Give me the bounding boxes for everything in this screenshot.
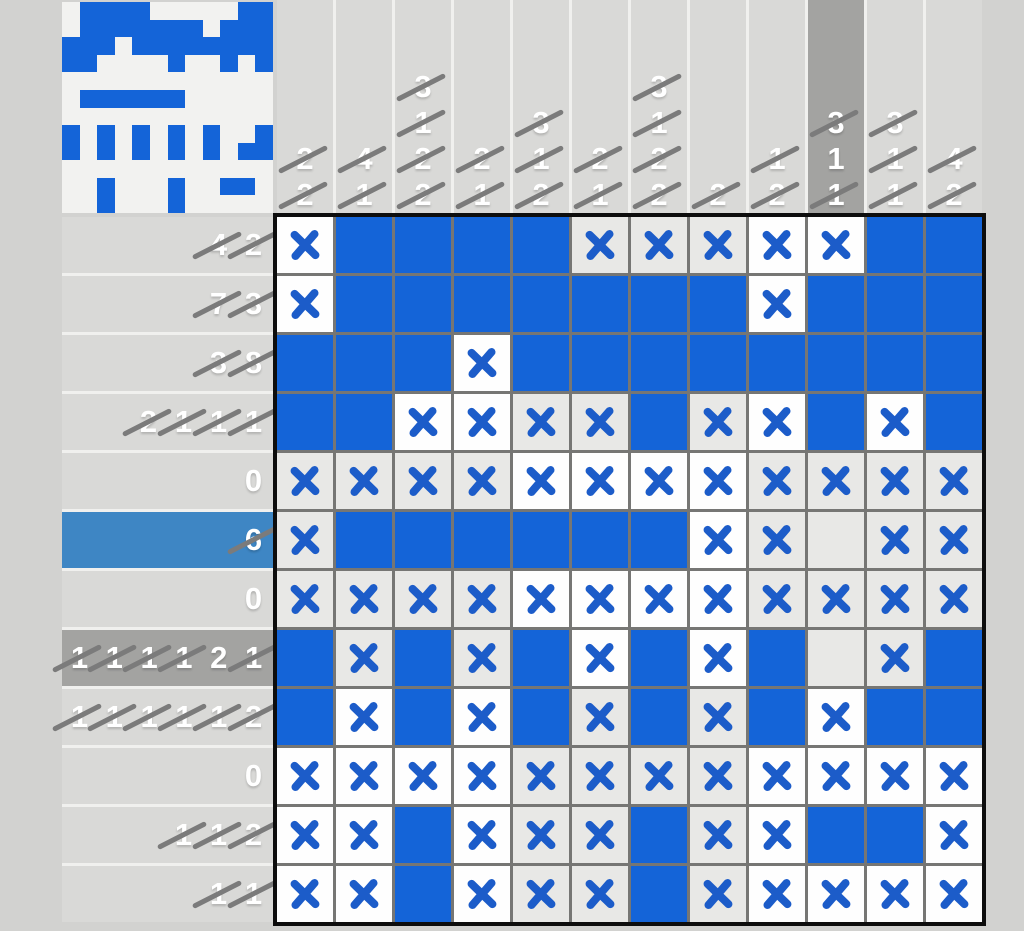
clue-number-crossed[interactable]: 1 <box>166 394 201 450</box>
grid-cell[interactable] <box>513 394 569 450</box>
preview-cell <box>185 2 203 20</box>
grid-cell[interactable] <box>867 571 923 627</box>
clue-number-crossed[interactable]: 1 <box>167 630 202 686</box>
preview-cell <box>97 72 115 90</box>
grid-cell[interactable] <box>631 335 687 391</box>
preview-cell <box>97 90 115 108</box>
grid-cell[interactable] <box>749 571 805 627</box>
grid-cell[interactable] <box>631 217 687 273</box>
grid-cell[interactable] <box>277 453 333 509</box>
preview-cell <box>80 125 98 143</box>
grid-cell[interactable] <box>808 453 864 509</box>
row-clue-band-12: 11 <box>62 866 273 922</box>
preview-cell <box>150 55 168 73</box>
preview-cell <box>132 125 150 143</box>
grid-cell[interactable] <box>395 217 451 273</box>
grid-cell[interactable] <box>631 866 687 922</box>
grid-cell[interactable] <box>867 630 923 686</box>
grid-cell[interactable] <box>277 630 333 686</box>
clue-number-crossed[interactable]: 1 <box>749 141 805 177</box>
clue-number-crossed[interactable]: 2 <box>236 807 271 863</box>
preview-cell <box>150 37 168 55</box>
grid-cell[interactable] <box>808 630 864 686</box>
grid-cell[interactable] <box>572 453 628 509</box>
row-clue-band-11: 112 <box>62 807 273 863</box>
grid-cell[interactable] <box>513 630 569 686</box>
clue-number-crossed[interactable]: 4 <box>201 217 236 273</box>
clue-number-crossed[interactable]: 1 <box>132 689 167 745</box>
clue-number-crossed[interactable]: 3 <box>631 69 687 105</box>
grid-cell[interactable] <box>513 512 569 568</box>
grid-cell[interactable] <box>808 276 864 332</box>
clue-number-crossed[interactable]: 2 <box>749 177 805 213</box>
grid-cell[interactable] <box>454 748 510 804</box>
grid-cell[interactable] <box>454 866 510 922</box>
clue-number-crossed[interactable]: 4 <box>336 141 392 177</box>
clue-number-crossed[interactable]: 3 <box>808 105 864 141</box>
grid-cell[interactable] <box>808 512 864 568</box>
grid-cell[interactable] <box>572 630 628 686</box>
row-clue-band-10: 0 <box>62 748 273 804</box>
clue-number-crossed[interactable]: 2 <box>277 141 333 177</box>
clue-number-crossed[interactable]: 1 <box>166 807 201 863</box>
grid-cell[interactable] <box>572 394 628 450</box>
preview-cell <box>150 2 168 20</box>
grid-cell[interactable] <box>749 217 805 273</box>
grid-cell[interactable] <box>572 807 628 863</box>
grid-cell[interactable] <box>808 394 864 450</box>
grid-cell[interactable] <box>454 689 510 745</box>
grid-cell[interactable] <box>749 689 805 745</box>
preview-cell <box>220 143 238 161</box>
preview-cell <box>115 90 133 108</box>
grid-cell[interactable] <box>395 630 451 686</box>
grid-cell[interactable] <box>454 394 510 450</box>
preview-cell <box>97 108 115 126</box>
row-clue-band-4: 2111 <box>62 394 273 450</box>
grid-cell[interactable] <box>395 276 451 332</box>
preview-cell <box>97 2 115 20</box>
grid-cell[interactable] <box>454 335 510 391</box>
grid-cell[interactable] <box>926 276 982 332</box>
grid-cell[interactable] <box>867 335 923 391</box>
grid-cell[interactable] <box>395 394 451 450</box>
preview-cell <box>115 55 133 73</box>
grid-cell[interactable] <box>926 394 982 450</box>
clue-number-crossed[interactable]: 3 <box>395 69 451 105</box>
clue-number-crossed[interactable]: 1 <box>395 105 451 141</box>
grid-cell[interactable] <box>513 335 569 391</box>
preview-cell <box>238 143 256 161</box>
grid-cell[interactable] <box>867 807 923 863</box>
row-clue-band-9: 111112 <box>62 689 273 745</box>
clue-number-crossed[interactable]: 2 <box>631 141 687 177</box>
column-clue-band-9: 12 <box>749 0 805 213</box>
grid-cell[interactable] <box>867 689 923 745</box>
grid-cell[interactable] <box>454 453 510 509</box>
preview-cell <box>80 55 98 73</box>
grid-cell[interactable] <box>277 689 333 745</box>
preview-cell <box>132 143 150 161</box>
preview-cell <box>150 160 168 178</box>
clue-number-crossed[interactable]: 1 <box>167 689 202 745</box>
preview-cell <box>203 108 221 126</box>
preview-cell <box>168 55 186 73</box>
clue-number-crossed[interactable]: 7 <box>201 276 236 332</box>
grid-cell[interactable] <box>926 571 982 627</box>
grid-cell[interactable] <box>277 807 333 863</box>
row-clue-band-5: 0 <box>62 453 273 509</box>
clue-number-crossed[interactable]: 1 <box>132 630 167 686</box>
clue-number-crossed[interactable]: 1 <box>572 177 628 213</box>
grid-cell[interactable] <box>808 866 864 922</box>
preview-cell <box>220 160 238 178</box>
clue-number[interactable]: 0 <box>236 453 271 509</box>
grid-cell[interactable] <box>926 512 982 568</box>
preview-cell <box>115 72 133 90</box>
grid-cell[interactable] <box>572 571 628 627</box>
preview-cell <box>203 125 221 143</box>
grid-cell[interactable] <box>572 512 628 568</box>
preview-cell <box>238 20 256 38</box>
preview-cell <box>80 143 98 161</box>
grid-cell[interactable] <box>749 630 805 686</box>
preview-cell <box>168 143 186 161</box>
grid-cell[interactable] <box>513 866 569 922</box>
grid-cell[interactable] <box>690 689 746 745</box>
clue-number-crossed[interactable]: 6 <box>236 512 271 568</box>
grid-cell[interactable] <box>395 689 451 745</box>
clue-number-crossed[interactable]: 2 <box>236 689 271 745</box>
row-clue-band-6: 6 <box>62 512 273 568</box>
grid-cell[interactable] <box>690 276 746 332</box>
grid-cell[interactable] <box>513 689 569 745</box>
grid-cell[interactable] <box>513 453 569 509</box>
grid-cell[interactable] <box>277 276 333 332</box>
grid-cell[interactable] <box>926 689 982 745</box>
clue-number-crossed[interactable]: 1 <box>867 141 923 177</box>
preview-cell <box>97 20 115 38</box>
grid-cell[interactable] <box>336 453 392 509</box>
grid-cell[interactable] <box>631 276 687 332</box>
column-clue-band-6: 21 <box>572 0 628 213</box>
preview-cell <box>62 178 80 196</box>
preview-cell <box>185 37 203 55</box>
preview-cell <box>255 160 273 178</box>
grid-cell[interactable] <box>572 866 628 922</box>
preview-cell <box>220 195 238 213</box>
preview-cell <box>132 37 150 55</box>
grid-cell[interactable] <box>336 866 392 922</box>
preview-cell <box>132 195 150 213</box>
grid-cell[interactable] <box>277 866 333 922</box>
preview-cell <box>185 125 203 143</box>
clue-number-crossed[interactable]: 1 <box>631 105 687 141</box>
grid-cell[interactable] <box>808 689 864 745</box>
grid-cell[interactable] <box>277 512 333 568</box>
preview-cell <box>132 178 150 196</box>
grid-cell[interactable] <box>631 512 687 568</box>
preview-cell <box>97 143 115 161</box>
grid-cell[interactable] <box>277 748 333 804</box>
preview-cell <box>185 160 203 178</box>
grid-cell[interactable] <box>690 807 746 863</box>
grid-cell[interactable] <box>631 630 687 686</box>
clue-number-crossed[interactable]: 3 <box>513 105 569 141</box>
preview-cell <box>168 125 186 143</box>
preview-cell <box>168 37 186 55</box>
preview-cell <box>168 108 186 126</box>
grid-cell[interactable] <box>749 276 805 332</box>
grid-cell[interactable] <box>926 866 982 922</box>
preview-cell <box>150 72 168 90</box>
puzzle-preview <box>62 2 273 213</box>
grid-cell[interactable] <box>867 394 923 450</box>
clue-number-crossed[interactable]: 8 <box>236 335 271 391</box>
clue-number-crossed[interactable]: 2 <box>926 177 982 213</box>
grid-cell[interactable] <box>513 217 569 273</box>
column-clue-band-10: 311 <box>808 0 864 213</box>
grid-cell[interactable] <box>572 276 628 332</box>
grid-cell[interactable] <box>454 276 510 332</box>
preview-cell <box>168 90 186 108</box>
preview-cell <box>150 143 168 161</box>
grid-cell[interactable] <box>454 630 510 686</box>
grid-cell[interactable] <box>926 748 982 804</box>
grid-cell[interactable] <box>926 217 982 273</box>
preview-cell <box>255 37 273 55</box>
grid-cell[interactable] <box>631 571 687 627</box>
preview-cell <box>238 125 256 143</box>
grid-cell[interactable] <box>749 748 805 804</box>
grid-cell[interactable] <box>395 807 451 863</box>
grid-cell[interactable] <box>336 748 392 804</box>
clue-number[interactable]: 0 <box>236 571 271 627</box>
grid-cell[interactable] <box>454 217 510 273</box>
grid-cell[interactable] <box>336 571 392 627</box>
grid-cell[interactable] <box>749 394 805 450</box>
clue-number-crossed[interactable]: 1 <box>62 630 97 686</box>
clue-number-crossed[interactable]: 2 <box>572 141 628 177</box>
grid-cell[interactable] <box>690 571 746 627</box>
preview-cell <box>132 55 150 73</box>
grid-cell[interactable] <box>277 217 333 273</box>
preview-cell <box>238 55 256 73</box>
grid-cell[interactable] <box>690 394 746 450</box>
row-clue-band-2: 73 <box>62 276 273 332</box>
preview-cell <box>97 160 115 178</box>
grid-cell[interactable] <box>926 453 982 509</box>
grid-cell[interactable] <box>513 748 569 804</box>
grid-cell[interactable] <box>749 512 805 568</box>
grid-cell[interactable] <box>336 335 392 391</box>
preview-cell <box>255 195 273 213</box>
grid-cell[interactable] <box>572 335 628 391</box>
preview-cell <box>150 108 168 126</box>
clue-number-crossed[interactable]: 1 <box>201 689 236 745</box>
clue-number-crossed[interactable]: 2 <box>690 177 746 213</box>
clue-number[interactable]: 0 <box>236 748 271 804</box>
grid-cell[interactable] <box>336 630 392 686</box>
grid-cell[interactable] <box>690 866 746 922</box>
preview-cell <box>255 108 273 126</box>
preview-cell <box>255 2 273 20</box>
grid-cell[interactable] <box>690 630 746 686</box>
grid-cell[interactable] <box>395 453 451 509</box>
grid-cell[interactable] <box>808 335 864 391</box>
grid-cell[interactable] <box>336 807 392 863</box>
preview-cell <box>150 195 168 213</box>
grid-cell[interactable] <box>749 453 805 509</box>
grid-cell[interactable] <box>454 571 510 627</box>
grid-cell[interactable] <box>690 748 746 804</box>
grid-cell[interactable] <box>867 866 923 922</box>
grid-cell[interactable] <box>336 394 392 450</box>
grid-cell[interactable] <box>513 807 569 863</box>
clue-number-crossed[interactable]: 2 <box>631 177 687 213</box>
preview-cell <box>220 72 238 90</box>
clue-number-crossed[interactable]: 1 <box>236 866 271 922</box>
clue-number-crossed[interactable]: 1 <box>867 177 923 213</box>
grid-cell[interactable] <box>395 335 451 391</box>
grid-cell[interactable] <box>336 689 392 745</box>
clue-number-crossed[interactable]: 2 <box>277 177 333 213</box>
column-clue-band-5: 312 <box>513 0 569 213</box>
grid-cell[interactable] <box>926 335 982 391</box>
grid-cell[interactable] <box>749 807 805 863</box>
grid-cell[interactable] <box>631 748 687 804</box>
preview-cell <box>80 72 98 90</box>
grid-cell[interactable] <box>749 866 805 922</box>
clue-number-crossed[interactable]: 1 <box>236 394 271 450</box>
clue-number[interactable]: 2 <box>201 630 236 686</box>
grid-cell[interactable] <box>454 807 510 863</box>
clue-number-crossed[interactable]: 4 <box>926 141 982 177</box>
preview-cell <box>203 37 221 55</box>
grid-cell[interactable] <box>395 512 451 568</box>
preview-cell <box>150 20 168 38</box>
clue-number-crossed[interactable]: 1 <box>201 866 236 922</box>
grid-cell[interactable] <box>867 453 923 509</box>
clue-number-crossed[interactable]: 1 <box>454 177 510 213</box>
grid-cell[interactable] <box>867 512 923 568</box>
grid-cell[interactable] <box>808 571 864 627</box>
clue-number-crossed[interactable]: 2 <box>395 177 451 213</box>
grid-cell[interactable] <box>631 394 687 450</box>
preview-cell <box>80 108 98 126</box>
preview-cell <box>255 178 273 196</box>
clue-number-crossed[interactable]: 3 <box>867 105 923 141</box>
grid-cell[interactable] <box>631 453 687 509</box>
preview-cell <box>203 178 221 196</box>
grid-cell[interactable] <box>395 748 451 804</box>
preview-cell <box>62 2 80 20</box>
preview-cell <box>97 178 115 196</box>
clue-number-crossed[interactable]: 3 <box>236 276 271 332</box>
clue-number-crossed[interactable]: 1 <box>62 689 97 745</box>
grid-cell[interactable] <box>336 276 392 332</box>
clue-number-crossed[interactable]: 1 <box>201 807 236 863</box>
clue-number-crossed[interactable]: 2 <box>454 141 510 177</box>
grid-cell[interactable] <box>690 217 746 273</box>
preview-cell <box>62 37 80 55</box>
preview-cell <box>255 143 273 161</box>
grid-cell[interactable] <box>395 571 451 627</box>
clue-number-crossed[interactable]: 3 <box>201 335 236 391</box>
grid-cell[interactable] <box>572 217 628 273</box>
clue-number-crossed[interactable]: 2 <box>395 141 451 177</box>
grid-cell[interactable] <box>336 217 392 273</box>
preview-cell <box>132 72 150 90</box>
grid-cell[interactable] <box>808 217 864 273</box>
grid-cell[interactable] <box>749 335 805 391</box>
preview-cell <box>185 72 203 90</box>
preview-cell <box>203 143 221 161</box>
clue-number-crossed[interactable]: 1 <box>336 177 392 213</box>
grid-cell[interactable] <box>454 512 510 568</box>
row-clue-band-8: 111121 <box>62 630 273 686</box>
clue-number-crossed[interactable]: 1 <box>236 630 271 686</box>
grid-cell[interactable] <box>631 689 687 745</box>
clue-number-crossed[interactable]: 1 <box>97 630 132 686</box>
nonogram-board: 224131222131221312221231131142 427338211… <box>0 0 1024 931</box>
preview-cell <box>132 108 150 126</box>
preview-cell <box>80 20 98 38</box>
grid-cell[interactable] <box>690 335 746 391</box>
preview-cell <box>255 55 273 73</box>
grid-cell[interactable] <box>395 866 451 922</box>
grid-cell[interactable] <box>336 512 392 568</box>
grid-cell[interactable] <box>572 689 628 745</box>
clue-number-crossed[interactable]: 1 <box>808 177 864 213</box>
preview-cell <box>238 2 256 20</box>
preview-cell <box>132 20 150 38</box>
grid-cell[interactable] <box>277 571 333 627</box>
preview-cell <box>115 125 133 143</box>
clue-number-crossed[interactable]: 2 <box>513 177 569 213</box>
clue-number-crossed[interactable]: 1 <box>97 689 132 745</box>
grid-cell[interactable] <box>926 630 982 686</box>
grid-cell[interactable] <box>867 748 923 804</box>
grid-cell[interactable] <box>277 335 333 391</box>
grid-cell[interactable] <box>867 276 923 332</box>
clue-number-crossed[interactable]: 1 <box>201 394 236 450</box>
clue-number-crossed[interactable]: 2 <box>236 217 271 273</box>
grid-cell[interactable] <box>690 512 746 568</box>
clue-number[interactable]: 1 <box>808 141 864 177</box>
preview-cell <box>115 195 133 213</box>
grid-cell[interactable] <box>926 807 982 863</box>
grid-cell[interactable] <box>690 453 746 509</box>
grid-cell[interactable] <box>277 394 333 450</box>
grid-cell[interactable] <box>631 807 687 863</box>
grid-cell[interactable] <box>808 748 864 804</box>
preview-cell <box>185 195 203 213</box>
grid-cell[interactable] <box>572 748 628 804</box>
grid-cell[interactable] <box>513 571 569 627</box>
preview-cell <box>62 143 80 161</box>
preview-cell <box>220 20 238 38</box>
grid-cell[interactable] <box>808 807 864 863</box>
grid-cell[interactable] <box>513 276 569 332</box>
clue-number-crossed[interactable]: 2 <box>131 394 166 450</box>
column-clue-band-3: 3122 <box>395 0 451 213</box>
preview-cell <box>62 72 80 90</box>
clue-number-crossed[interactable]: 1 <box>513 141 569 177</box>
preview-cell <box>97 195 115 213</box>
preview-cell <box>97 125 115 143</box>
grid-cell[interactable] <box>867 217 923 273</box>
